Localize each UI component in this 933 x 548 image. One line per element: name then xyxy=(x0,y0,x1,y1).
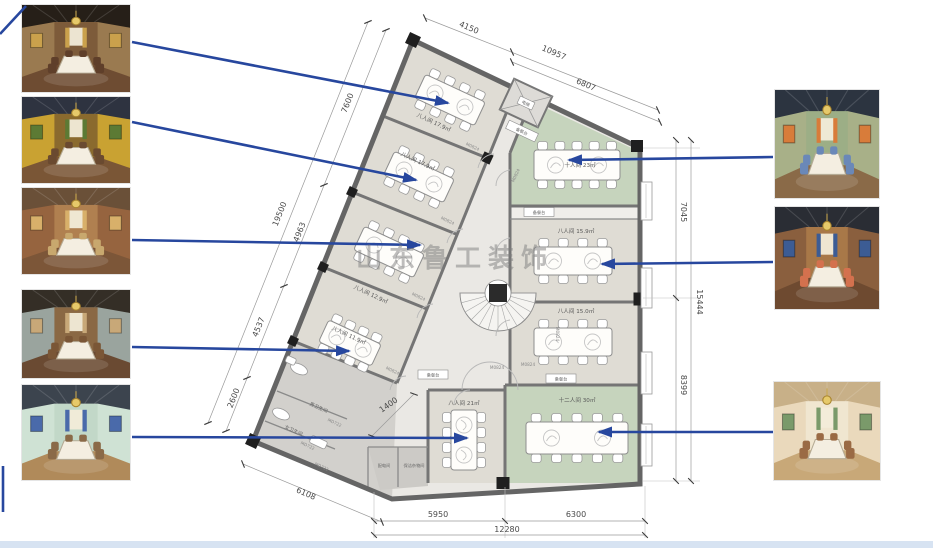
serving-label-3: 备餐台 xyxy=(555,376,568,383)
serving-label-1: 备餐台 xyxy=(533,209,546,216)
dim-top-10957: 10957 xyxy=(541,44,568,62)
dim-top-4150: 4150 xyxy=(458,20,480,36)
dim-left-19500: 19500 xyxy=(271,201,289,228)
floor-plan: 电梯 xyxy=(0,0,933,548)
room-8p21-label: 八人间 21㎡ xyxy=(448,399,480,407)
door-tag: M0824 xyxy=(555,327,560,342)
dim-left-7600: 7600 xyxy=(340,92,356,114)
bottom-blue-strip xyxy=(0,541,933,548)
dim-right-7045: 7045 xyxy=(679,202,688,222)
table-room-12p xyxy=(526,414,628,463)
dim-bottom-12280: 12280 xyxy=(494,525,519,534)
dim-top-6807: 6807 xyxy=(575,77,597,93)
serving-label-2: 备餐台 xyxy=(427,372,440,379)
dim-bottom-5950: 5950 xyxy=(428,510,448,519)
dim-right-8399: 8399 xyxy=(679,375,688,395)
room-10p-label: 十人间 23㎡ xyxy=(564,161,596,169)
door-tag: M0824 xyxy=(521,362,536,367)
dim-6108: 6108 xyxy=(295,486,317,502)
presentation-board: 电梯 xyxy=(0,0,933,548)
dim-bottom-6300: 6300 xyxy=(566,510,586,519)
window-radiators xyxy=(641,182,652,466)
room-12p-label: 十二人间 30㎡ xyxy=(559,396,596,404)
power-room-label: 配电间 xyxy=(378,462,391,469)
room-7-label: 八人间 15.0㎡ xyxy=(558,307,595,315)
dim-right-15444: 15444 xyxy=(695,289,704,314)
cleaning-room-label: 保洁杂物间 xyxy=(404,462,425,469)
door-tag: M0824 xyxy=(490,365,505,370)
room-6-label: 八人间 15.9㎡ xyxy=(558,227,595,235)
